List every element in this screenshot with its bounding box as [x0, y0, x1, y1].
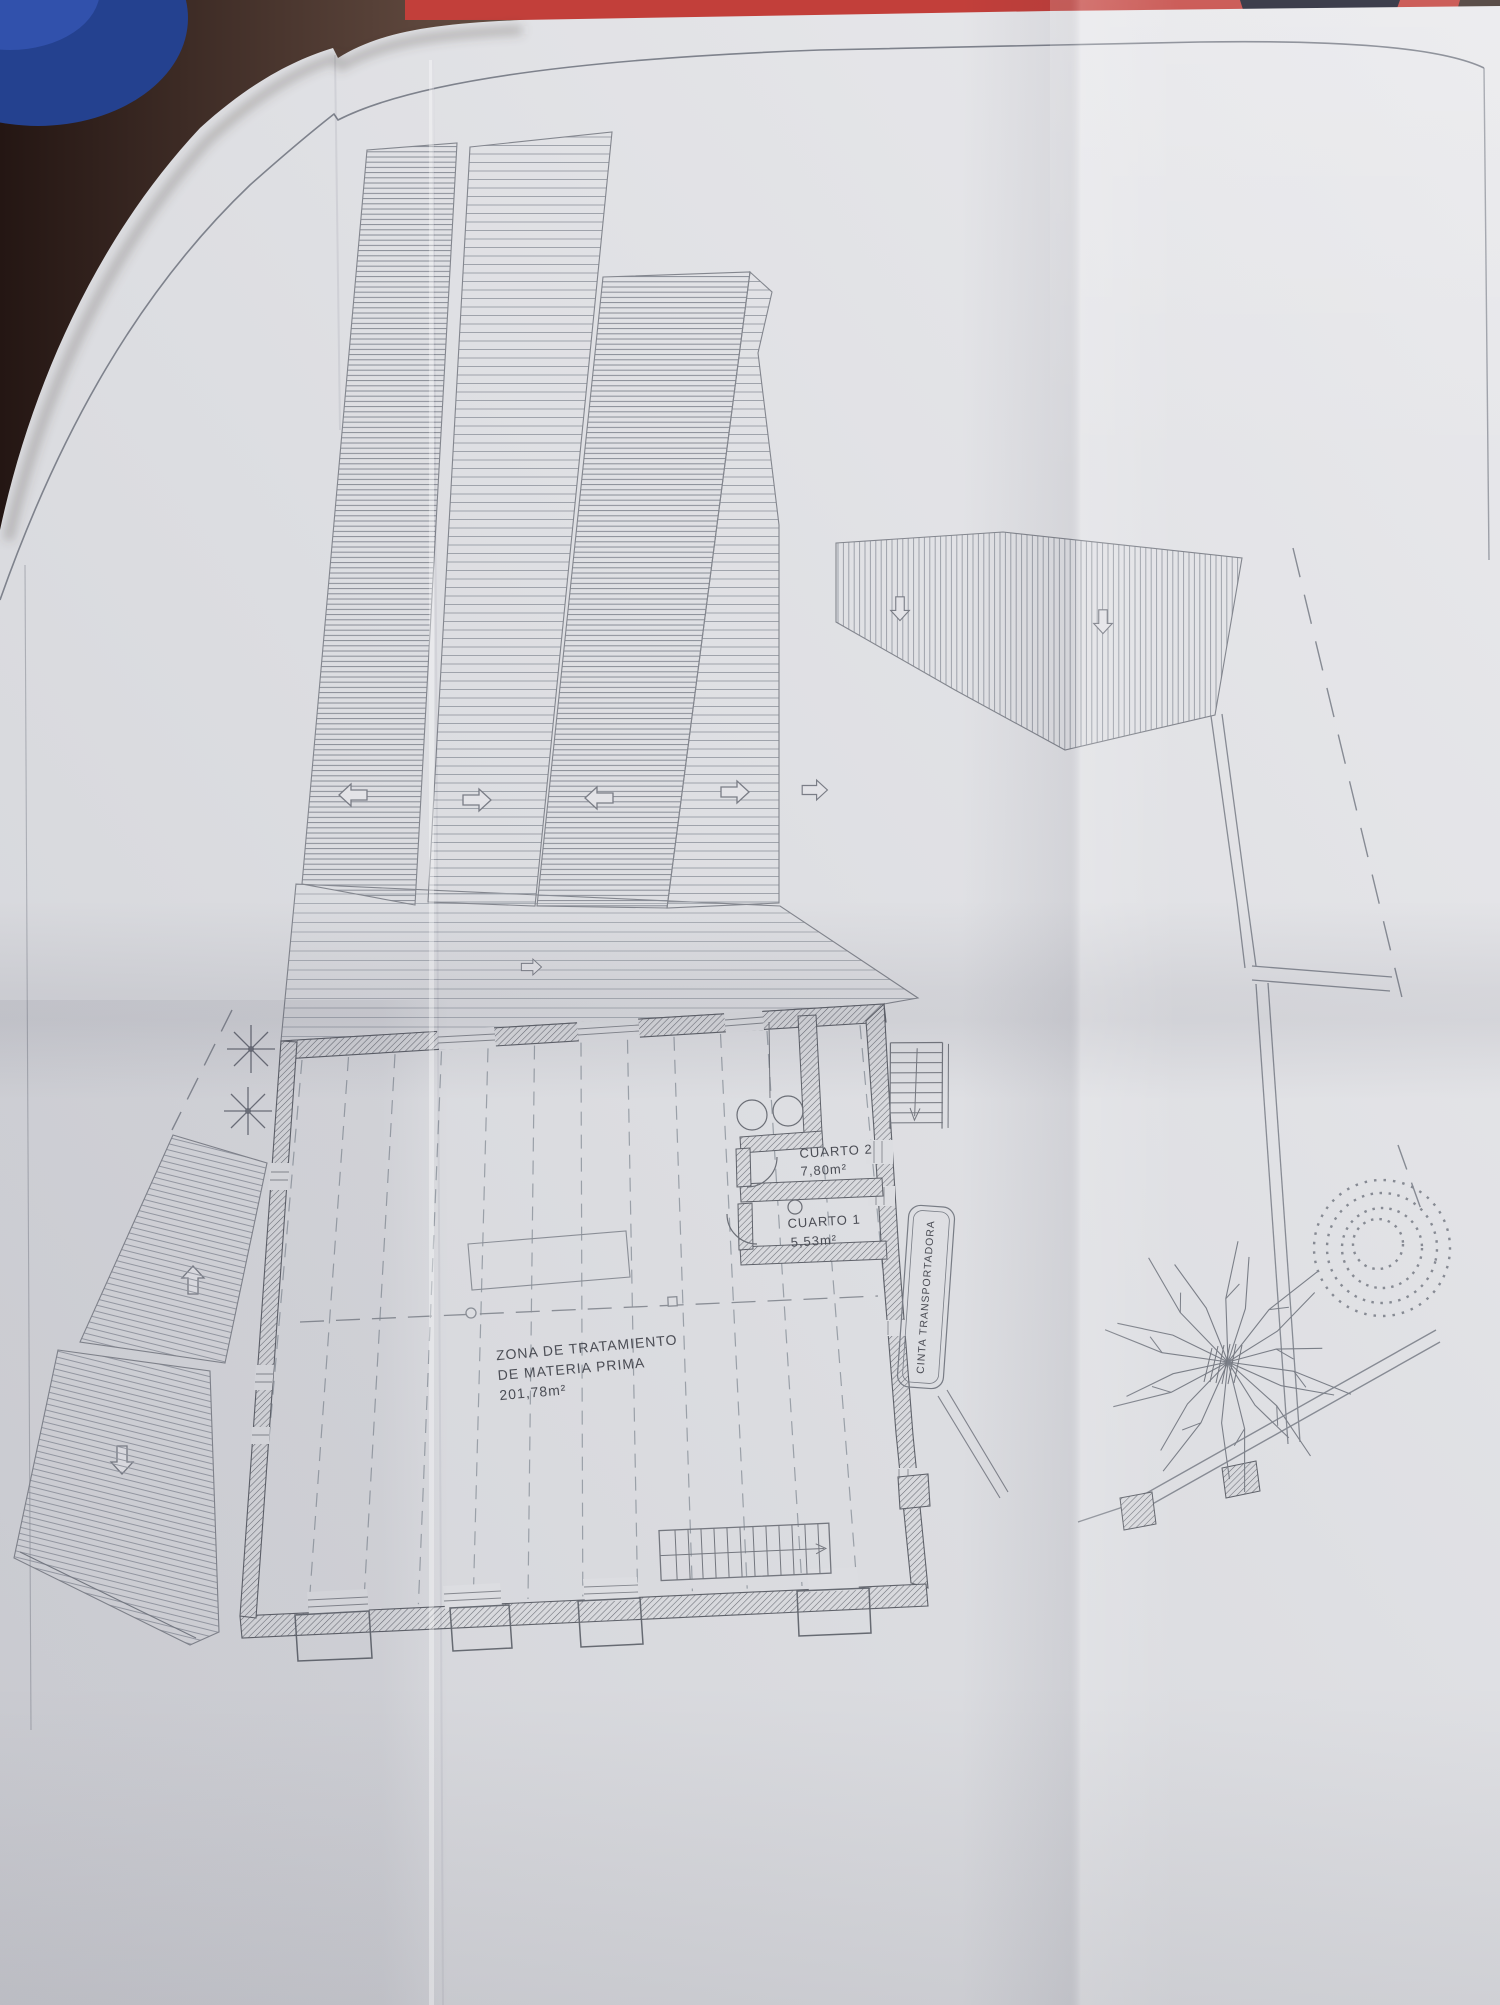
photo-of-floor-plan: CINTA TRANSPORTADORA ZONA DE TRATAMIENTO… — [0, 0, 1500, 2005]
window — [880, 1320, 906, 1336]
cuarto2-area: 7,80m² — [800, 1161, 847, 1179]
cuarto1-area: 5,53m² — [790, 1232, 837, 1250]
floor-plan-drawing: CINTA TRANSPORTADORA ZONA DE TRATAMIENTO… — [0, 0, 1500, 2005]
